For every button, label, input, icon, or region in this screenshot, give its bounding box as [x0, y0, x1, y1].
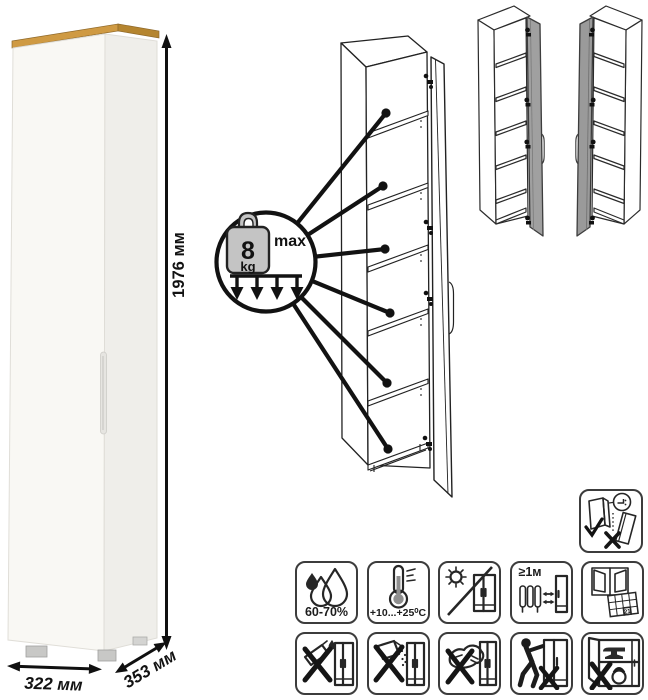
cabinet-foot: [98, 650, 116, 661]
cabinet-side-face: [104, 34, 157, 651]
tipping-wardrobe: [616, 513, 636, 544]
arrow-left-icon: [7, 661, 20, 671]
anvil-icon: [603, 648, 625, 660]
cabinet-foot: [26, 646, 47, 657]
no-overloading-icon: [581, 632, 644, 695]
exploded-cabinet-diagram: 8 kg max: [200, 10, 492, 510]
no-dragging-icon: [510, 632, 573, 695]
distance-arrows-icon: [543, 592, 555, 604]
width-dimension: 322 мм: [6, 661, 102, 695]
width-label: 322 мм: [24, 674, 83, 695]
person-figure: [520, 638, 543, 686]
gray-door: [527, 17, 543, 236]
wood-top-side: [118, 24, 159, 38]
x-icon: [606, 533, 619, 547]
load-unit: kg: [240, 259, 255, 274]
wardrobe-glyph: [556, 576, 567, 612]
cabinet-front-face: [8, 34, 105, 651]
humidity-icon: 60-70%: [295, 561, 358, 624]
cabinet-carcass: [341, 36, 454, 497]
load-max-label: max: [274, 233, 306, 250]
wardrobe-glyph: [474, 575, 495, 611]
door-right-variant-drawing: [474, 0, 560, 244]
height-label: 1976 мм: [170, 232, 188, 298]
calendar-icon: 21: [607, 592, 637, 617]
open-window-icon: [592, 568, 628, 595]
keep-1m-from-heat-icon: ≥1м: [510, 561, 573, 624]
radiator-icon: [520, 586, 541, 612]
door-left-variant-drawing: [556, 0, 646, 244]
arrow-right-icon: [89, 664, 102, 674]
care-icon-grid: 60-70% +10...+25⁰C: [295, 561, 644, 695]
no-abrasive-powder-icon: [367, 632, 430, 695]
x-icon: [376, 647, 402, 680]
page-canvas: 1976 мм 322 мм 353 мм: [0, 0, 648, 700]
x-icon: [305, 649, 330, 680]
wardrobe-glyph: [480, 642, 496, 685]
gray-door: [577, 17, 593, 236]
distance-label: ≥1м: [519, 565, 542, 579]
load-capacity-badge: 8 kg max: [217, 213, 316, 312]
height-dimension: 1976 мм: [162, 34, 189, 650]
sun-icon: [450, 572, 461, 583]
secure-to-wall-anti-tip-icon: [579, 489, 643, 553]
wardrobe-glyph: [407, 643, 424, 685]
humidity-label: 60-70%: [297, 605, 356, 619]
no-scraping-icon: [438, 632, 501, 695]
product-photo: 1976 мм 322 мм 353 мм: [0, 0, 200, 700]
cabinet-foot: [133, 637, 147, 645]
ventilation-calendar-icon: 21: [581, 561, 644, 624]
temperature-label: +10...+25⁰C: [369, 607, 428, 619]
door-handle-groove: [449, 282, 454, 334]
no-excess-water-icon: [295, 632, 358, 695]
arrow-up-icon: [162, 34, 172, 48]
temperature-range-icon: +10...+25⁰C: [367, 561, 430, 624]
powder-dots: [401, 650, 407, 666]
wardrobe-glyph: [335, 643, 353, 685]
no-direct-sunlight-icon: [438, 561, 501, 624]
magnifier-detail-icon: [614, 494, 631, 511]
